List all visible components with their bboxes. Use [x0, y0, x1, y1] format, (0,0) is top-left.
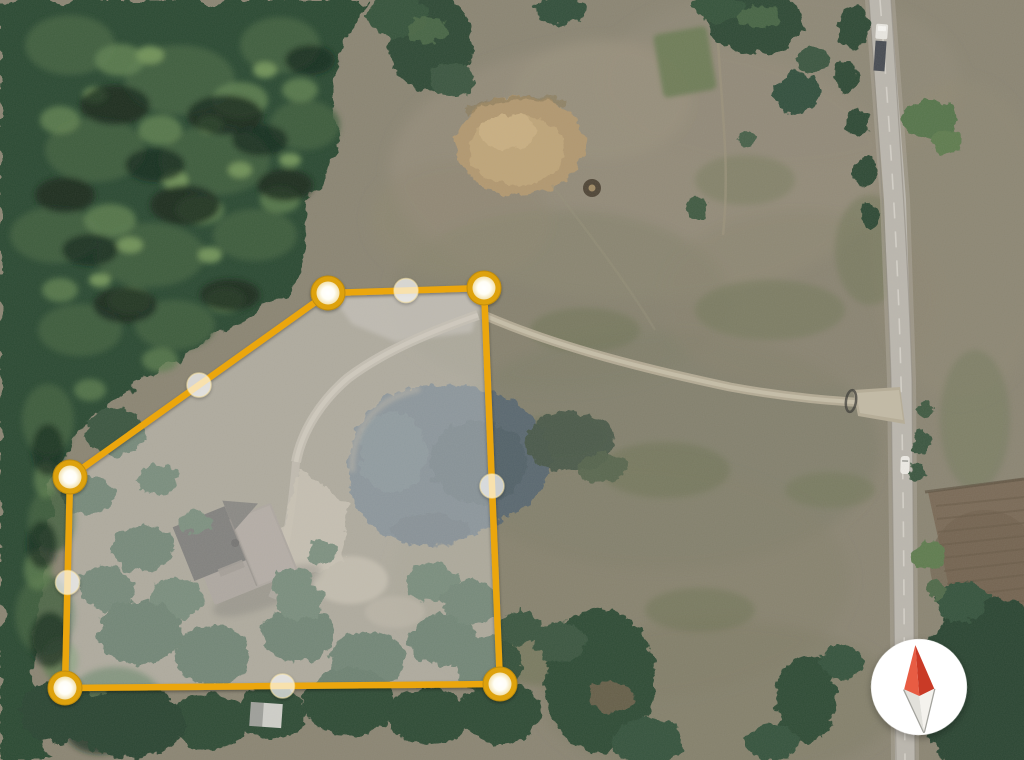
midpoint-handle[interactable] [480, 474, 504, 498]
satellite-map[interactable] [0, 0, 1024, 760]
midpoint-handle[interactable] [187, 373, 211, 397]
vertex-handle-center[interactable] [59, 466, 82, 489]
vertex-handle-center[interactable] [317, 282, 340, 305]
vertex-handle-center[interactable] [473, 277, 496, 300]
vertex-handle-center[interactable] [54, 677, 77, 700]
midpoint-handle[interactable] [394, 279, 418, 303]
midpoint-handle[interactable] [271, 674, 295, 698]
vertex-handle-center[interactable] [489, 673, 512, 696]
midpoint-handle[interactable] [56, 571, 80, 595]
